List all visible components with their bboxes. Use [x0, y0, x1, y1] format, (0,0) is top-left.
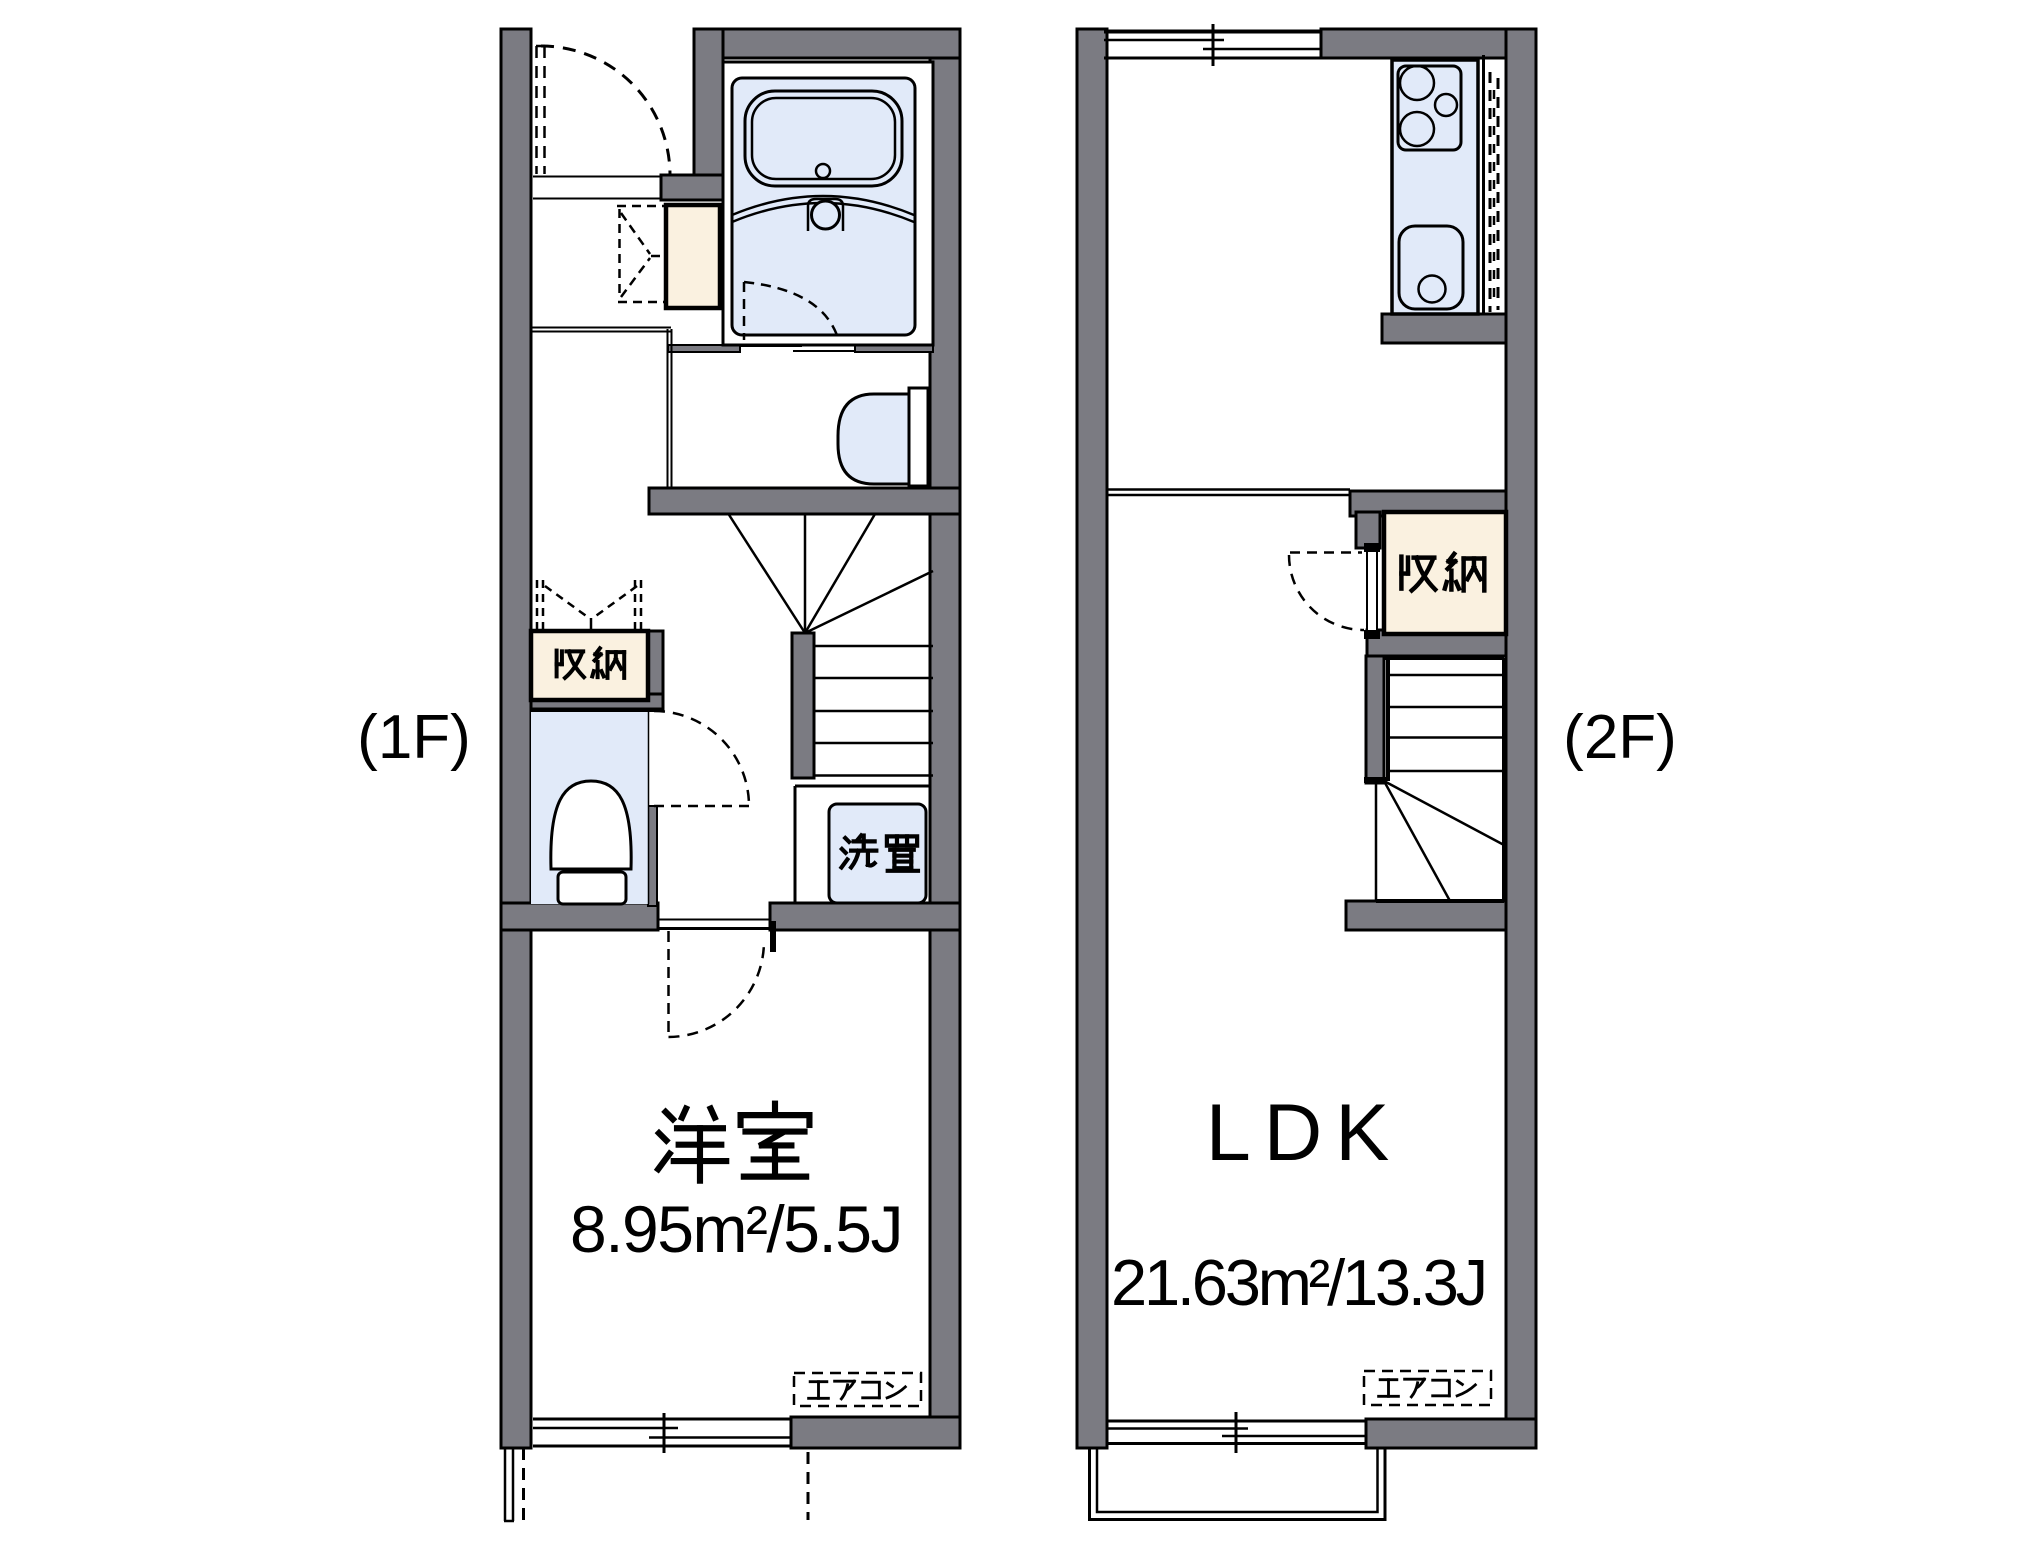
svg-text:8.95m²/5.5J: 8.95m²/5.5J: [570, 1192, 902, 1266]
svg-text:(1F): (1F): [357, 703, 471, 772]
svg-text:(2F): (2F): [1563, 703, 1677, 772]
svg-text:21.63m²/13.3J: 21.63m²/13.3J: [1111, 1246, 1485, 1319]
svg-text:LDK: LDK: [1206, 1088, 1403, 1178]
